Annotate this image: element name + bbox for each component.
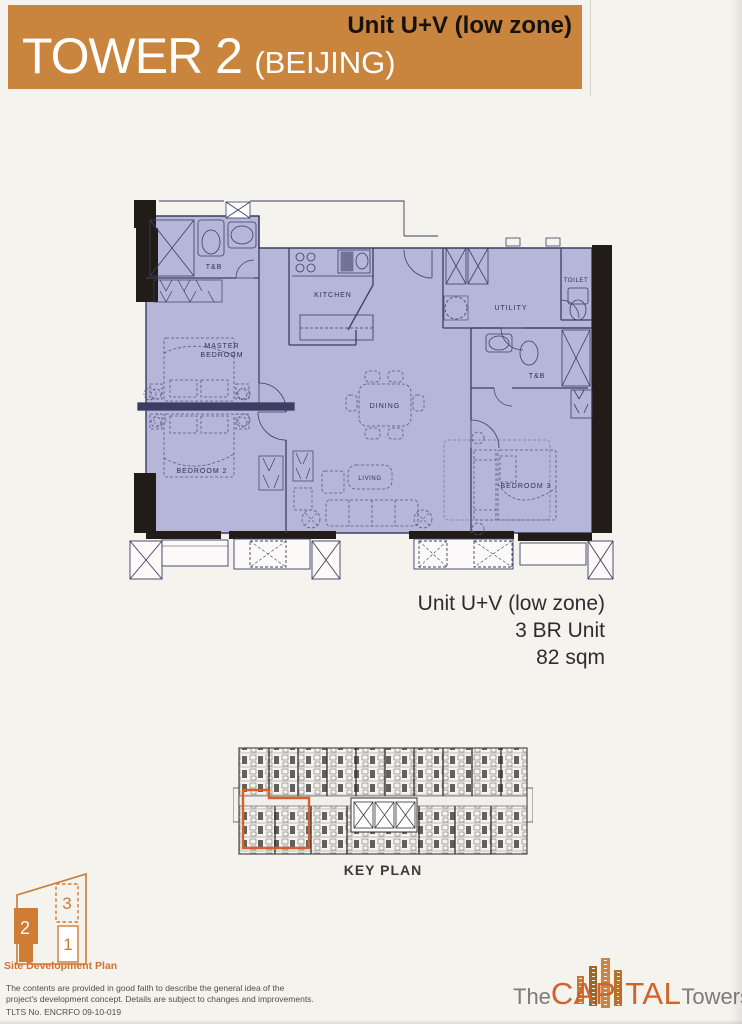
unit-info: Unit U+V (low zone) 3 BR Unit 82 sqm — [360, 590, 605, 671]
top-shaft-box — [226, 202, 250, 218]
room-label-bedroom3: BEDROOM 3 — [500, 483, 551, 490]
room-label-toilet: TOILET — [564, 278, 589, 284]
tlts-number: TLTS No. ENCRFO 09-10-019 — [6, 1007, 121, 1017]
tower-title: TOWER 2 — [22, 28, 242, 84]
capital-towers-logo: The CAPITAL Towers — [505, 954, 740, 1020]
room-label-living: LIVING — [358, 476, 381, 482]
tower-subtitle: (BEIJING) — [254, 45, 395, 80]
brochure-page: Unit U+V (low zone) TOWER 2 (BEIJING) — [0, 0, 742, 1024]
title-banner: Unit U+V (low zone) TOWER 2 (BEIJING) — [8, 5, 582, 89]
unit-info-type: 3 BR Unit — [360, 617, 605, 644]
tower1-number: 1 — [63, 935, 72, 954]
key-plan — [233, 740, 533, 864]
room-label-utility: UTILITY — [494, 305, 527, 312]
keyplan-building — [233, 748, 533, 854]
siteplan-tower1: 1 — [58, 926, 78, 962]
banner-title: TOWER 2 (BEIJING) — [22, 31, 396, 81]
unit-info-name: Unit U+V (low zone) — [360, 590, 605, 617]
room-label-master-1: MASTER — [204, 343, 239, 350]
logo-wordmark: The CAPITAL Towers — [513, 976, 742, 1012]
room-label-master-2: BEDROOM — [200, 352, 243, 359]
room-label-tb2: T&B — [529, 373, 546, 380]
tower2-number: 2 — [20, 918, 30, 938]
room-label-bedroom2: BEDROOM 2 — [176, 468, 227, 475]
balconies — [130, 539, 613, 579]
room-label-tb1: T&B — [206, 264, 223, 271]
keyplan-label: KEY PLAN — [233, 862, 533, 878]
site-development-plan: 2 3 1 — [4, 872, 104, 972]
room-label-dining: DINING — [370, 403, 401, 410]
logo-the: The — [513, 984, 551, 1010]
unit-floor-plan: T&B KITCHEN UTILITY TOILET MASTER BEDROO… — [126, 188, 616, 598]
keyplan-core — [351, 798, 417, 832]
disclaimer-line2: project's development concept. Details a… — [6, 994, 346, 1005]
corridor-details — [506, 238, 560, 246]
disclaimer-line1: The contents are provided in good faith … — [6, 983, 346, 994]
siteplan-tower3: 3 — [56, 884, 78, 922]
disclaimer: The contents are provided in good faith … — [6, 983, 346, 1004]
unit-info-area: 82 sqm — [360, 644, 605, 671]
logo-capital: CAPITAL — [551, 976, 681, 1012]
page-edge-shadow — [730, 0, 742, 1024]
room-label-kitchen: KITCHEN — [314, 292, 352, 299]
page-bottom-shadow — [0, 1020, 742, 1024]
siteplan-label: Site Development Plan — [4, 960, 124, 972]
scan-crease — [590, 0, 591, 96]
tower3-number: 3 — [62, 894, 71, 913]
